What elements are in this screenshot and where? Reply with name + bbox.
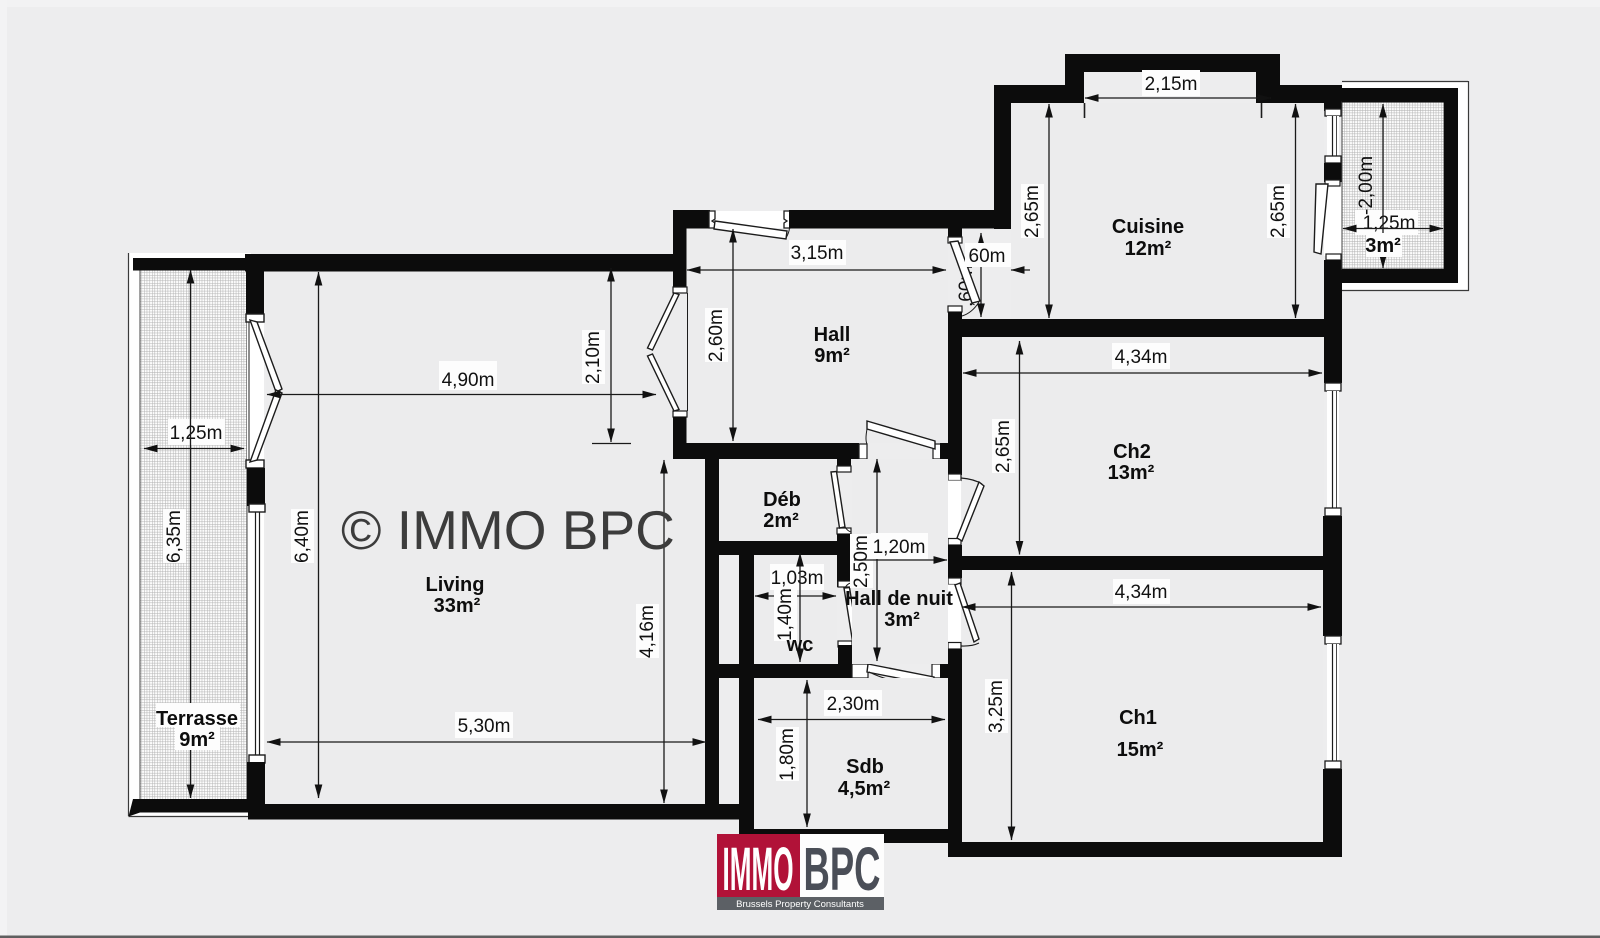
svg-text:4,90m: 4,90m (442, 370, 495, 391)
svg-text:1,80m: 1,80m (777, 728, 798, 781)
svg-text:2m²: 2m² (763, 510, 799, 532)
svg-text:6,40m: 6,40m (292, 510, 313, 563)
svg-text:1,03m: 1,03m (771, 568, 824, 589)
svg-text:2,65m: 2,65m (1022, 185, 1043, 238)
svg-text:Brussels Property Consultants: Brussels Property Consultants (736, 899, 864, 910)
svg-text:13m²: 13m² (1108, 462, 1155, 484)
svg-text:12m²: 12m² (1125, 238, 1172, 260)
svg-text:Sdb: Sdb (846, 756, 884, 778)
svg-text:Ch1: Ch1 (1119, 707, 1157, 729)
svg-text:60m: 60m (969, 246, 1006, 267)
svg-text:4,5m²: 4,5m² (838, 778, 891, 800)
svg-text:Hall: Hall (814, 324, 851, 346)
svg-text:9m²: 9m² (814, 345, 850, 367)
svg-text:33m²: 33m² (434, 595, 481, 617)
svg-text:1,25m: 1,25m (1363, 213, 1416, 234)
svg-text:Déb: Déb (763, 489, 801, 511)
svg-text:© IMMO BPC: © IMMO BPC (341, 499, 675, 561)
svg-text:-2,00m: -2,00m (1356, 156, 1377, 215)
svg-text:3,25m: 3,25m (986, 680, 1007, 733)
svg-text:wc: wc (786, 634, 814, 656)
svg-text:2,65m: 2,65m (1268, 185, 1289, 238)
svg-text:2,15m: 2,15m (1145, 74, 1198, 95)
svg-text:9m²: 9m² (179, 729, 215, 751)
svg-text:Ch2: Ch2 (1113, 441, 1151, 463)
svg-text:3m²: 3m² (884, 609, 920, 631)
svg-text:1,20m: 1,20m (873, 537, 926, 558)
svg-text:2,50m: 2,50m (851, 535, 872, 588)
svg-text:Cuisine: Cuisine (1112, 216, 1184, 238)
svg-text:5,30m: 5,30m (458, 716, 511, 737)
svg-text:2,10m: 2,10m (583, 331, 604, 384)
svg-text:2,30m: 2,30m (827, 694, 880, 715)
svg-text:15m²: 15m² (1117, 739, 1164, 761)
svg-text:Living: Living (426, 574, 485, 596)
svg-text:BPC: BPC (804, 835, 881, 903)
svg-text:3,15m: 3,15m (791, 243, 844, 264)
svg-text:3m²: 3m² (1365, 235, 1401, 257)
svg-text:4,34m: 4,34m (1115, 582, 1168, 603)
svg-text:2,60m: 2,60m (706, 309, 727, 362)
svg-text:IMMO: IMMO (723, 835, 794, 903)
svg-text:6,35m: 6,35m (164, 510, 185, 563)
svg-text:Terrasse: Terrasse (156, 708, 238, 730)
svg-text:4,34m: 4,34m (1115, 347, 1168, 368)
svg-text:4,16m: 4,16m (637, 605, 658, 658)
svg-text:Hall de nuit: Hall de nuit (845, 588, 953, 610)
svg-text:2,65m: 2,65m (993, 420, 1014, 473)
svg-text:1,25m: 1,25m (170, 423, 223, 444)
